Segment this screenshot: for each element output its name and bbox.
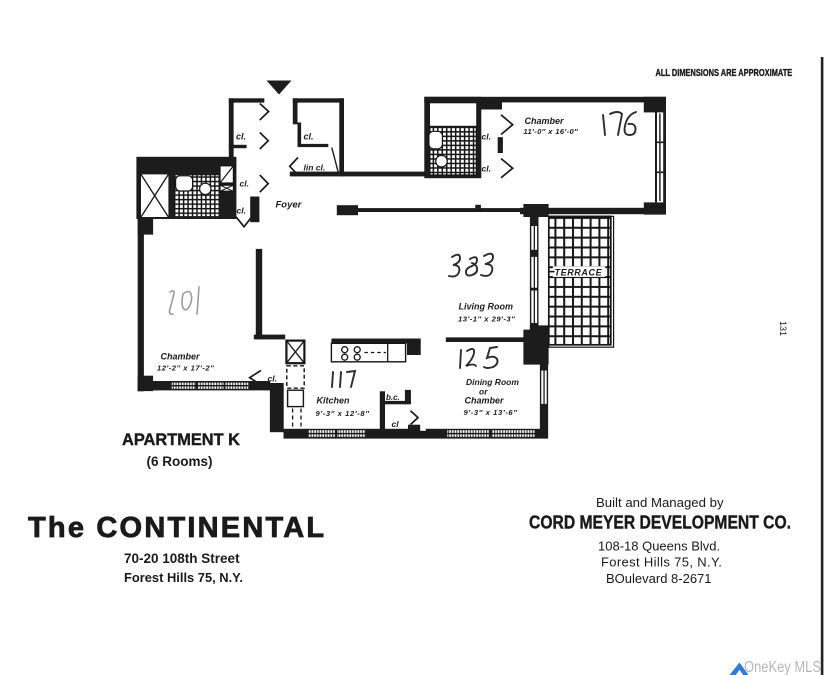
- svg-text:(6 Rooms): (6 Rooms): [147, 454, 213, 469]
- svg-text:Living Room: Living Room: [459, 302, 514, 312]
- svg-text:131: 131: [778, 321, 788, 336]
- svg-text:Chamber: Chamber: [161, 352, 201, 362]
- svg-text:Kitchen: Kitchen: [317, 396, 351, 406]
- svg-text:12′-2″ x 17′-2″: 12′-2″ x 17′-2″: [157, 364, 214, 373]
- svg-text:CORD MEYER DEVELOPMENT CO.: CORD MEYER DEVELOPMENT CO.: [529, 513, 791, 533]
- svg-text:13′-1″ x 29′-3″: 13′-1″ x 29′-3″: [458, 315, 515, 324]
- svg-text:cl.: cl.: [236, 132, 246, 142]
- svg-text:cl.: cl.: [240, 179, 249, 189]
- svg-text:Built and Managed by: Built and Managed by: [596, 495, 724, 510]
- svg-text:BOulevard 8-2671: BOulevard 8-2671: [606, 571, 712, 586]
- svg-text:The CONTINENTAL: The CONTINENTAL: [28, 512, 326, 544]
- svg-text:Chamber: Chamber: [465, 396, 505, 406]
- svg-text:cl.: cl.: [237, 206, 246, 216]
- svg-text:cl.: cl.: [482, 132, 491, 142]
- svg-text:Dining Room: Dining Room: [466, 377, 519, 387]
- svg-text:b.c.: b.c.: [386, 393, 400, 402]
- svg-text:9′-3″ x 13′-6″: 9′-3″ x 13′-6″: [464, 408, 518, 417]
- svg-text:lin cl.: lin cl.: [304, 163, 326, 173]
- svg-text:11′-0″ x 16′-0″: 11′-0″ x 16′-0″: [524, 127, 579, 136]
- svg-text:OneKey MLS: OneKey MLS: [744, 659, 821, 675]
- svg-text:108-18 Queens Blvd.: 108-18 Queens Blvd.: [598, 539, 720, 554]
- svg-text:70-20 108th Street: 70-20 108th Street: [124, 551, 240, 566]
- svg-text:Foyer: Foyer: [276, 200, 303, 211]
- svg-text:Forest Hills 75, N.Y.: Forest Hills 75, N.Y.: [601, 555, 722, 570]
- svg-text:Forest Hills 75, N.Y.: Forest Hills 75, N.Y.: [124, 570, 243, 585]
- svg-text:cl.: cl.: [304, 132, 314, 142]
- svg-text:cl.: cl.: [482, 164, 491, 174]
- svg-text:Chamber: Chamber: [525, 116, 565, 126]
- svg-text:APARTMENT K: APARTMENT K: [122, 430, 241, 449]
- svg-text:cl: cl: [392, 419, 400, 429]
- svg-text:9′-3″ x 12′-8″: 9′-3″ x 12′-8″: [316, 409, 370, 418]
- svg-text:ALL DIMENSIONS ARE APPROXIMATE: ALL DIMENSIONS ARE APPROXIMATE: [656, 67, 793, 78]
- svg-text:TERRACE: TERRACE: [555, 267, 603, 277]
